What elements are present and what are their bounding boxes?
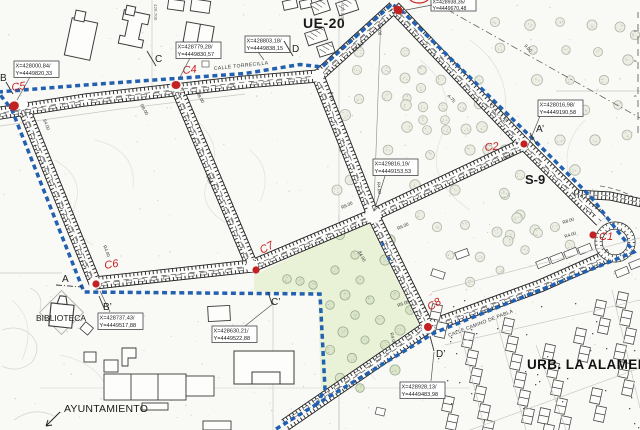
svg-text:X=428803,18/: X=428803,18/ <box>247 39 282 45</box>
svg-text:Y=4449153,53: Y=4449153,53 <box>375 169 412 175</box>
svg-text:B’: B’ <box>103 302 112 313</box>
svg-text:URB. LA ALAMEDA: URB. LA ALAMEDA <box>527 357 640 372</box>
svg-text:X=428016,98/: X=428016,98/ <box>540 103 575 109</box>
svg-text:B: B <box>0 73 7 84</box>
svg-text:UE-20: UE-20 <box>303 15 345 31</box>
svg-text:D: D <box>292 44 299 55</box>
svg-text:428.700: 428.700 <box>153 4 158 21</box>
svg-text:Y=4449670,48: Y=4449670,48 <box>433 6 467 12</box>
svg-text:C2: C2 <box>484 141 499 154</box>
svg-text:A: A <box>62 274 69 285</box>
svg-text:Y=4449838,15: Y=4449838,15 <box>247 46 284 52</box>
svg-text:A’: A’ <box>536 124 544 135</box>
svg-text:X=428000,84/: X=428000,84/ <box>16 64 51 70</box>
svg-text:X=428779,28/: X=428779,28/ <box>178 45 213 51</box>
svg-text:84.00: 84.00 <box>377 24 382 36</box>
svg-text:X=428737,43/: X=428737,43/ <box>100 316 135 322</box>
svg-text:Y=4449190,58: Y=4449190,58 <box>540 110 577 116</box>
svg-text:Y=4449830,57: Y=4449830,57 <box>178 52 215 58</box>
svg-text:C’: C’ <box>271 297 280 308</box>
svg-text:X=428928,13/: X=428928,13/ <box>402 385 437 391</box>
svg-text:X=428938,35/: X=428938,35/ <box>433 0 466 6</box>
svg-text:X=428630,21/: X=428630,21/ <box>214 329 249 335</box>
svg-text:Y=4449517,88: Y=4449517,88 <box>100 323 137 329</box>
svg-text:BIBLIOTECA: BIBLIOTECA <box>36 313 86 323</box>
svg-text:AYUNTAMIENTO: AYUNTAMIENTO <box>64 403 148 415</box>
svg-text:C: C <box>155 54 162 65</box>
svg-text:D’: D’ <box>436 349 445 360</box>
svg-text:X=429816,19/: X=429816,19/ <box>375 162 410 168</box>
svg-text:Y=4449820,33: Y=4449820,33 <box>16 71 53 77</box>
svg-text:C4: C4 <box>182 64 197 77</box>
svg-text:9.20: 9.20 <box>329 92 335 102</box>
svg-text:428.800: 428.800 <box>340 4 345 21</box>
svg-text:Y=4449483,98: Y=4449483,98 <box>402 392 439 398</box>
svg-text:C1: C1 <box>599 231 613 243</box>
svg-text:S-9: S-9 <box>525 172 545 187</box>
svg-text:Y=4449522,88: Y=4449522,88 <box>214 336 251 342</box>
